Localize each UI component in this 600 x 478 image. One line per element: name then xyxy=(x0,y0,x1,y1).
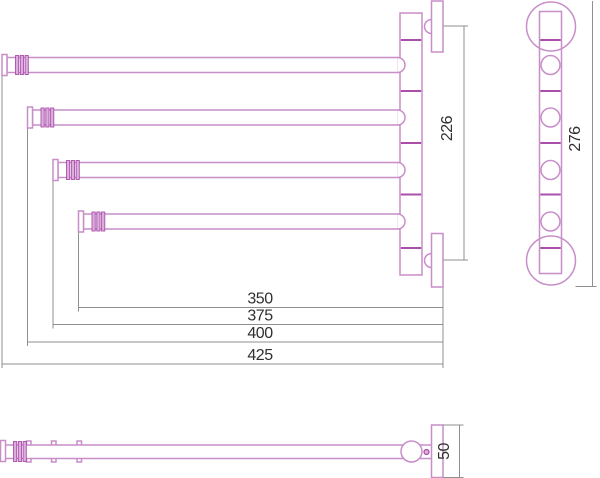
arm-collar-ring xyxy=(25,56,28,75)
dim-label-425: 425 xyxy=(247,347,273,364)
arm-3 xyxy=(53,160,405,181)
arm-collar-ring xyxy=(76,161,79,180)
arm-collar-ring xyxy=(92,212,95,231)
top-view: 50 xyxy=(1,425,464,478)
bracket-boss xyxy=(425,254,432,268)
arm-collar-ring xyxy=(102,212,105,231)
dim-label-350: 350 xyxy=(247,291,273,308)
bracket-plate xyxy=(432,1,444,52)
bracket-ring-bottom xyxy=(527,236,576,285)
front-dimension-lines: 350 375 400 425 226 xyxy=(2,26,468,368)
top-cap xyxy=(1,441,6,462)
front-view xyxy=(2,1,443,287)
arm-cap xyxy=(28,107,33,128)
arm-tube xyxy=(58,163,398,178)
dim-label-400: 400 xyxy=(247,325,273,342)
arm-collar-ring xyxy=(16,56,19,75)
swivel-joint xyxy=(541,161,560,180)
top-collar-ring xyxy=(23,442,26,462)
arm-4 xyxy=(79,211,406,232)
arm-2 xyxy=(28,107,406,128)
arm-collar-ring xyxy=(46,108,49,127)
arm-cap xyxy=(2,55,7,76)
wall-bracket-top xyxy=(425,1,443,52)
top-collar-ring xyxy=(18,442,21,462)
screw-dot xyxy=(424,450,429,455)
arm-cap xyxy=(79,211,84,232)
pivot-circle xyxy=(401,441,422,462)
arm-collar-ring xyxy=(67,161,70,180)
arm-tube xyxy=(33,110,399,125)
dim-label-50: 50 xyxy=(436,443,453,460)
dim-label-226: 226 xyxy=(439,115,456,141)
bracket-plate xyxy=(432,234,444,288)
arm-collar-ring xyxy=(51,108,54,127)
dim-label-375: 375 xyxy=(247,308,273,325)
dim-label-276: 276 xyxy=(567,126,584,152)
arm-tube xyxy=(84,214,399,229)
side-view: 276 xyxy=(527,1,597,287)
arm-collar-ring xyxy=(97,212,100,231)
arm-collar-ring xyxy=(20,56,23,75)
swivel-joint xyxy=(541,108,560,127)
swivel-joint xyxy=(541,56,560,75)
arm-collar-ring xyxy=(71,161,74,180)
arm-cap xyxy=(53,160,58,181)
top-tube xyxy=(2,445,432,459)
bracket-ring-top xyxy=(527,2,576,51)
swivel-joint xyxy=(541,212,560,231)
arm-tube xyxy=(7,58,398,73)
wall-bracket-bottom xyxy=(425,234,443,288)
bracket-boss xyxy=(425,20,432,34)
arm-1 xyxy=(2,55,405,76)
drawing-sheet: 350 375 400 425 226 xyxy=(0,0,600,478)
top-collar-ring xyxy=(14,442,17,462)
technical-drawing-canvas: 350 375 400 425 226 xyxy=(0,0,600,478)
arm-collar-ring xyxy=(41,108,44,127)
